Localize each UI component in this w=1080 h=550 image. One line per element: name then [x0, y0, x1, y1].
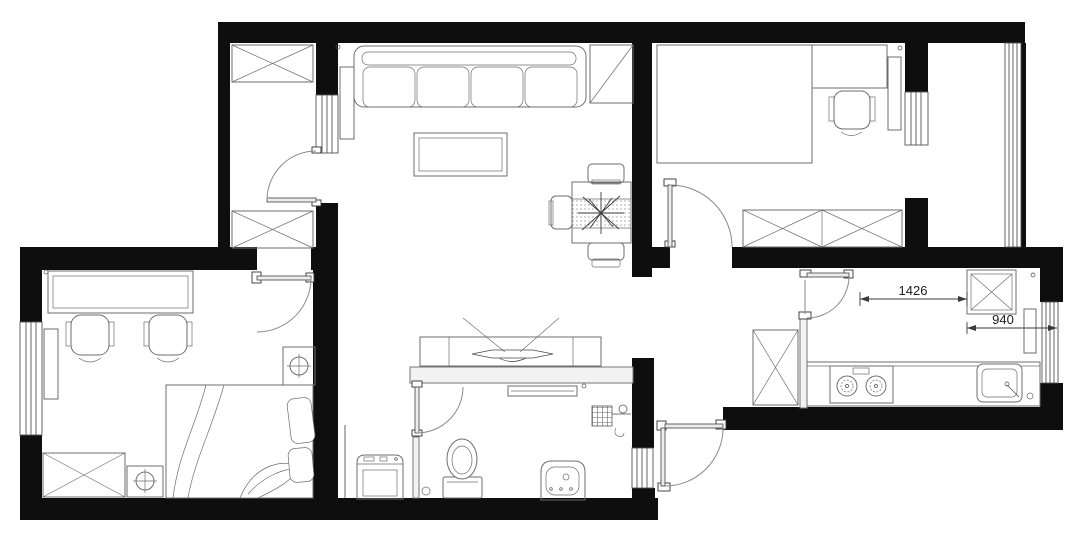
wall-segment — [732, 247, 1063, 268]
bedroom1-door — [252, 272, 314, 332]
nightstand — [283, 347, 315, 385]
wardrobe-cabinet — [232, 211, 313, 248]
desk — [812, 45, 887, 88]
window-kitchen-right — [1042, 302, 1058, 383]
mirror-shelf — [508, 386, 577, 396]
sofa — [354, 46, 586, 107]
bed — [166, 385, 316, 498]
narrow-cabinet — [44, 329, 58, 399]
kitchen-door — [799, 270, 853, 319]
bathroom — [357, 381, 631, 500]
bedroom-1 — [43, 270, 316, 498]
wall-shelf — [1024, 309, 1036, 353]
wall-segment — [313, 270, 338, 498]
office-chair — [66, 315, 114, 362]
window-dressing-partition — [316, 95, 338, 153]
hall-cabinet — [340, 67, 354, 139]
wall-segment — [652, 247, 670, 268]
wall-segment — [905, 43, 928, 92]
wall-segment — [20, 270, 42, 322]
plant — [578, 192, 624, 234]
floor-drain — [422, 487, 430, 495]
tv — [463, 318, 559, 362]
door-stop — [44, 270, 48, 274]
window-bedroom1-left — [20, 322, 42, 435]
stove — [830, 366, 893, 403]
shower-set — [592, 405, 631, 437]
bed — [657, 45, 812, 163]
drain — [1027, 393, 1033, 399]
dining-chair — [588, 243, 624, 267]
desk — [48, 271, 193, 313]
wall-segment — [218, 22, 1025, 43]
dining-chair — [549, 196, 572, 229]
wall-segment — [632, 43, 652, 277]
bathroom-top-partition — [410, 367, 633, 383]
wardrobe — [743, 210, 902, 247]
corner-side-table — [590, 45, 633, 103]
pillow — [286, 397, 315, 445]
floor-plan-canvas: 1426 940 — [0, 0, 1080, 550]
foyer-wardrobe — [753, 330, 798, 405]
fridge — [967, 270, 1016, 314]
bookshelf — [888, 57, 901, 130]
office-chair — [829, 91, 875, 136]
dressing-room — [232, 45, 321, 248]
kitchen-left-partition — [800, 318, 807, 408]
wall-segment — [632, 488, 655, 500]
dimension-label: 940 — [992, 312, 1014, 327]
washing-machine — [357, 455, 403, 499]
wall-segment — [20, 435, 42, 498]
entrance-door — [657, 420, 726, 491]
wall-segment — [632, 358, 654, 448]
dressing-room-door — [267, 147, 321, 206]
wall-segment — [316, 43, 338, 95]
wardrobe — [43, 453, 125, 497]
wall-segment — [311, 247, 338, 270]
toilet — [443, 439, 482, 498]
wall-segment — [20, 498, 658, 520]
wall-segment — [20, 247, 257, 270]
wardrobe-cabinet — [232, 45, 313, 82]
wash-basin — [541, 461, 585, 500]
wall-segment — [316, 203, 338, 250]
dimension-1426: 1426 — [860, 283, 967, 306]
window-bathroom-right — [632, 448, 653, 488]
wall-segment — [905, 198, 928, 247]
pillow — [288, 447, 315, 483]
kitchen: 1426 940 — [753, 270, 1057, 406]
bedroom-2 — [657, 45, 902, 247]
door-stop — [582, 384, 586, 388]
window-balcony-outer — [1005, 43, 1021, 247]
bedroom2-door — [664, 179, 732, 247]
wall-segment — [1040, 268, 1063, 302]
wall-segment — [1021, 43, 1026, 247]
door-stop — [898, 46, 902, 50]
wall-segment — [723, 407, 1063, 430]
bathroom-door — [412, 381, 463, 436]
kitchen-sink — [977, 364, 1033, 402]
coffee-table — [414, 133, 507, 176]
nightstand — [127, 466, 163, 497]
living-room — [336, 45, 633, 366]
dimension-label: 1426 — [899, 283, 928, 298]
window-balcony-partition — [905, 92, 928, 145]
door-stop — [1031, 273, 1035, 277]
floor-plan-svg: 1426 940 — [0, 0, 1080, 550]
office-chair — [144, 315, 192, 362]
bathroom-left-partition — [413, 437, 419, 498]
dining-chair — [588, 164, 624, 184]
wall-segment — [218, 22, 230, 250]
